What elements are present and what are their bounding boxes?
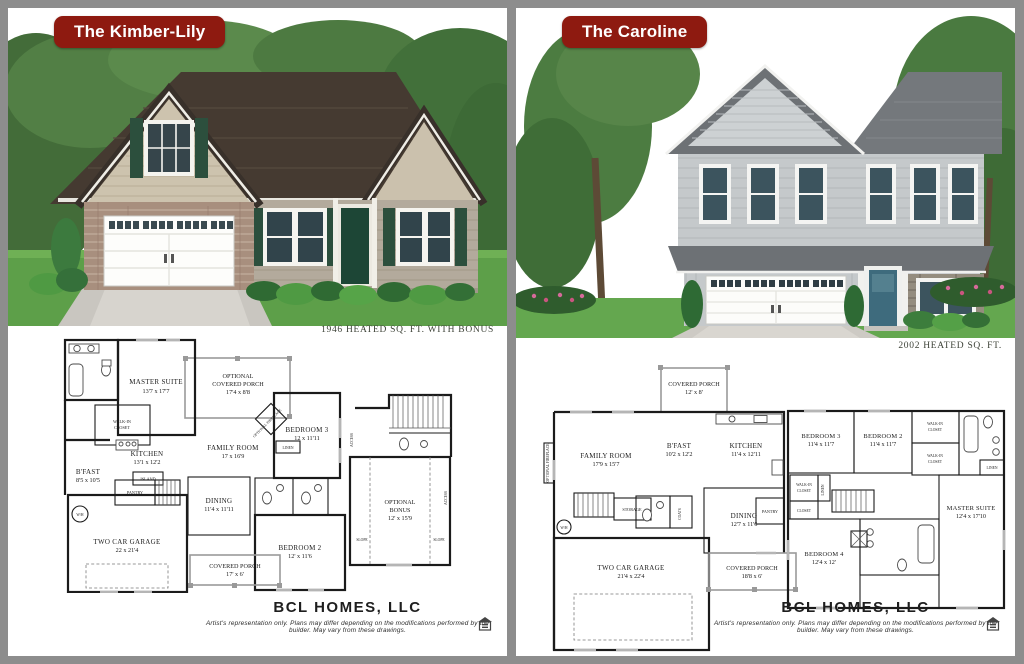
disclaimer-text: Artist's representation only. Plans may … [198,620,497,634]
garage-handle [164,254,167,263]
garage-door [706,276,846,324]
garage-door-outline [86,564,168,588]
stairs [155,480,180,505]
shutter [383,208,395,266]
room-dims: 12'4 x 17'10 [956,513,986,520]
panel-kimber-lily: The Kimber-Lily 1946 HEATED SQ. FT. WITH… [8,8,507,656]
plan-title-caroline: The Caroline [562,16,707,48]
right-wing-wall [374,200,478,290]
kitchen-range [116,440,138,450]
walk-in-closet [912,443,959,475]
covered-porch-bottom: COVERED PORCH 18'8 x 6' [706,553,798,592]
house-rendering-caroline [516,8,1015,338]
room-dims: 21'4 x 22'4 [618,573,645,580]
room-label: ACCESS [444,491,448,505]
room-label: WALK-IN [113,419,131,424]
walk-in-closet [790,475,818,501]
floorplan-kimber-lily: OPTIONAL COVERED PORCH 17'4 x 8'8 MASTER… [8,338,507,593]
walk-in-closet [912,411,959,443]
room-label: KITCHEN [730,442,763,450]
footer-kimber-lily: BCL HOMES, LLC Artist's representation o… [198,599,497,634]
room-label: WALK-IN [927,454,943,458]
room-label: SLOPE [356,538,368,542]
half-bath [636,496,670,528]
room-label: DINING [731,512,758,520]
room-label: DINING [206,497,233,505]
optional-bonus-plan: OPTIONAL BONUS 12' x 15'9 SLOPE SLOPE AC… [350,395,451,565]
front-door [341,208,369,284]
garage-door-panes [109,221,233,229]
room-label: W/H [76,513,84,517]
room-dims: 22 x 21'4 [116,547,139,554]
room-label: SLOPE [433,538,445,542]
room-dims: 11'4 x 12'11 [731,451,761,458]
room-label: TWO CAR GARAGE [597,564,664,572]
shutter [195,118,208,178]
room-dims: 17'9 x 15'7 [593,461,620,468]
room-label: TWO CAR GARAGE [93,538,160,546]
sqft-note-caroline: 2002 HEATED SQ. FT. [898,341,1002,351]
room-label: MASTER SUITE [947,505,996,512]
garage-front [84,202,254,290]
room-label: CLOSET [928,428,943,432]
porch-post [372,198,377,290]
garage-door-outline [574,594,692,640]
sqft-note-kimber-lily: 1946 HEATED SQ. FT. WITH BONUS [321,325,494,335]
entry [864,266,908,331]
equal-housing-logo [986,617,1000,631]
master-bath-fixtures [69,344,111,396]
porch-roof-band [668,246,994,272]
room-label: B'FAST [667,442,692,450]
room-label: OPTIONAL FIREPLACE [546,443,550,483]
room-label: OPTIONAL [223,373,254,380]
room-dims: 12'4 x 12' [812,559,836,566]
room-label: LINEN [986,466,997,470]
room-label: BEDROOM 2 [279,544,322,552]
room-label: MASTER SUITE [129,378,183,386]
room-label: BONUS [390,507,412,514]
garage-handle [171,254,174,263]
room-label: ISLAND [140,477,155,482]
room-dims: 13'1 x 12'2 [134,459,161,466]
room-dims: 11'4 x 11'11 [204,506,233,513]
room-label: PANTRY [762,509,778,514]
brand-name: BCL HOMES, LLC [706,599,1005,616]
room-label: COVERED PORCH [668,381,720,388]
room-label: LINEN [821,484,825,495]
room-label: COVERED PORCH [209,563,261,570]
room-label: B'FAST [76,468,101,476]
room-dims: 17' x 6' [226,571,244,578]
house-rendering-kimber-lily [8,8,507,326]
room-label: BEDROOM 4 [804,551,844,558]
room-label: BEDROOM 2 [863,433,902,440]
plan-title-kimber-lily: The Kimber-Lily [54,16,225,48]
room-dims: 10'2 x 12'2 [666,451,693,458]
room-label: FAMILY ROOM [207,444,259,452]
room-dims: 13'7 x 17'7 [143,388,170,395]
middle-wall [251,198,377,290]
room-label: STORAGE [622,507,642,512]
room-label: LINEN [282,446,293,450]
driveway [672,324,880,338]
covered-porch-top: COVERED PORCH 12' x 8' [658,365,730,412]
room-label: CLOSET [797,489,812,493]
shutter [130,118,143,178]
room-dims: 18'8 x 6' [742,573,763,580]
room-dims: 12' x 11'6 [288,553,312,560]
room-label: COVERED PORCH [212,381,264,388]
equal-housing-logo [478,617,492,631]
laundry-closet [851,531,867,547]
room-dims: 12' x 15'9 [388,515,412,522]
hall-bath [860,519,939,575]
porch-post [333,198,338,290]
room-label: FAMILY ROOM [580,452,632,460]
footer-caroline: BCL HOMES, LLC Artist's representation o… [706,599,1005,634]
room-dims: 8'5 x 10'5 [76,477,100,484]
stairs [574,493,614,517]
main-roof [846,72,1002,154]
brand-name: BCL HOMES, LLC [198,599,497,616]
room-label: WALK-IN [796,483,812,487]
room-label: COVERED PORCH [726,565,778,572]
hall-baths [255,478,328,515]
caroline-second-floor: BEDROOM 3 11'4 x 11'7 BEDROOM 2 11'4 x 1… [788,411,1004,608]
room-dims: 17'4 x 8'8 [226,389,250,396]
room-label: CLOSET [928,460,943,464]
room-label: WALK-IN [927,422,943,426]
disclaimer-text: Artist's representation only. Plans may … [706,620,1005,634]
covered-porch: COVERED PORCH 17' x 6' [188,555,282,588]
room-dims: 12'7 x 11'6 [731,521,758,528]
room-label: COATS [678,508,682,520]
flyer-board: The Kimber-Lily 1946 HEATED SQ. FT. WITH… [0,0,1024,664]
room-label: W/H [560,526,568,530]
room-dims: 11'4 x 11'7 [870,441,897,448]
optional-covered-porch: OPTIONAL COVERED PORCH 17'4 x 8'8 [183,356,292,419]
room-dims: 17 x 16'9 [222,453,245,460]
room-label: KITCHEN [131,450,164,458]
room-label: BEDROOM 3 [801,433,840,440]
room-dims: 11'4 x 11'7 [808,441,835,448]
room-dims: 12' x 8' [685,389,703,396]
room-label: CLOSET [797,509,812,513]
entry-step [864,326,908,331]
room-label: BEDROOM 3 [286,426,329,434]
shutter [455,208,467,266]
stairs [832,490,874,512]
master-suite [939,475,1004,608]
room-label: CLOSET [114,425,130,430]
room-label: ACCESS [350,433,354,447]
room-label: OPTIONAL FIREPLACE [252,408,283,439]
room-label: OPTIONAL [385,499,416,506]
panel-caroline: The Caroline 2002 HEATED SQ. FT. COVERED… [516,8,1015,656]
